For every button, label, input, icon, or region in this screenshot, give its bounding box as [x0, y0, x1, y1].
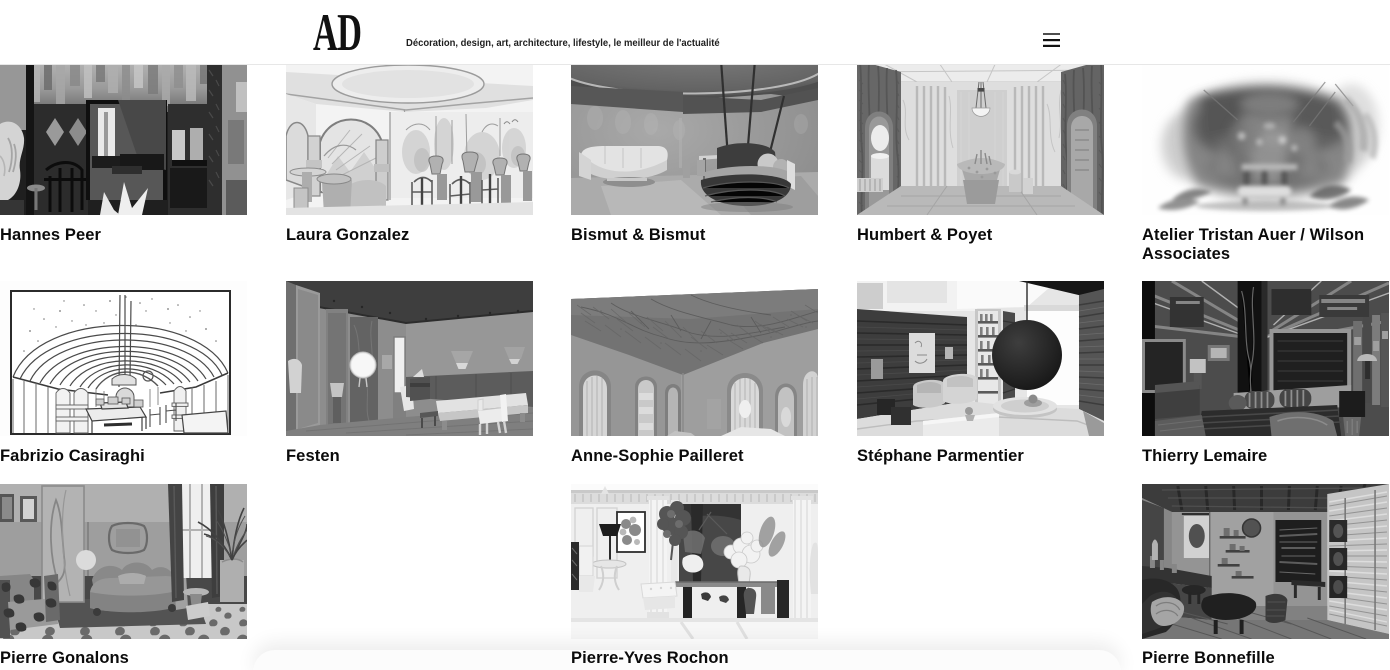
svg-text:AD: AD	[313, 11, 361, 53]
